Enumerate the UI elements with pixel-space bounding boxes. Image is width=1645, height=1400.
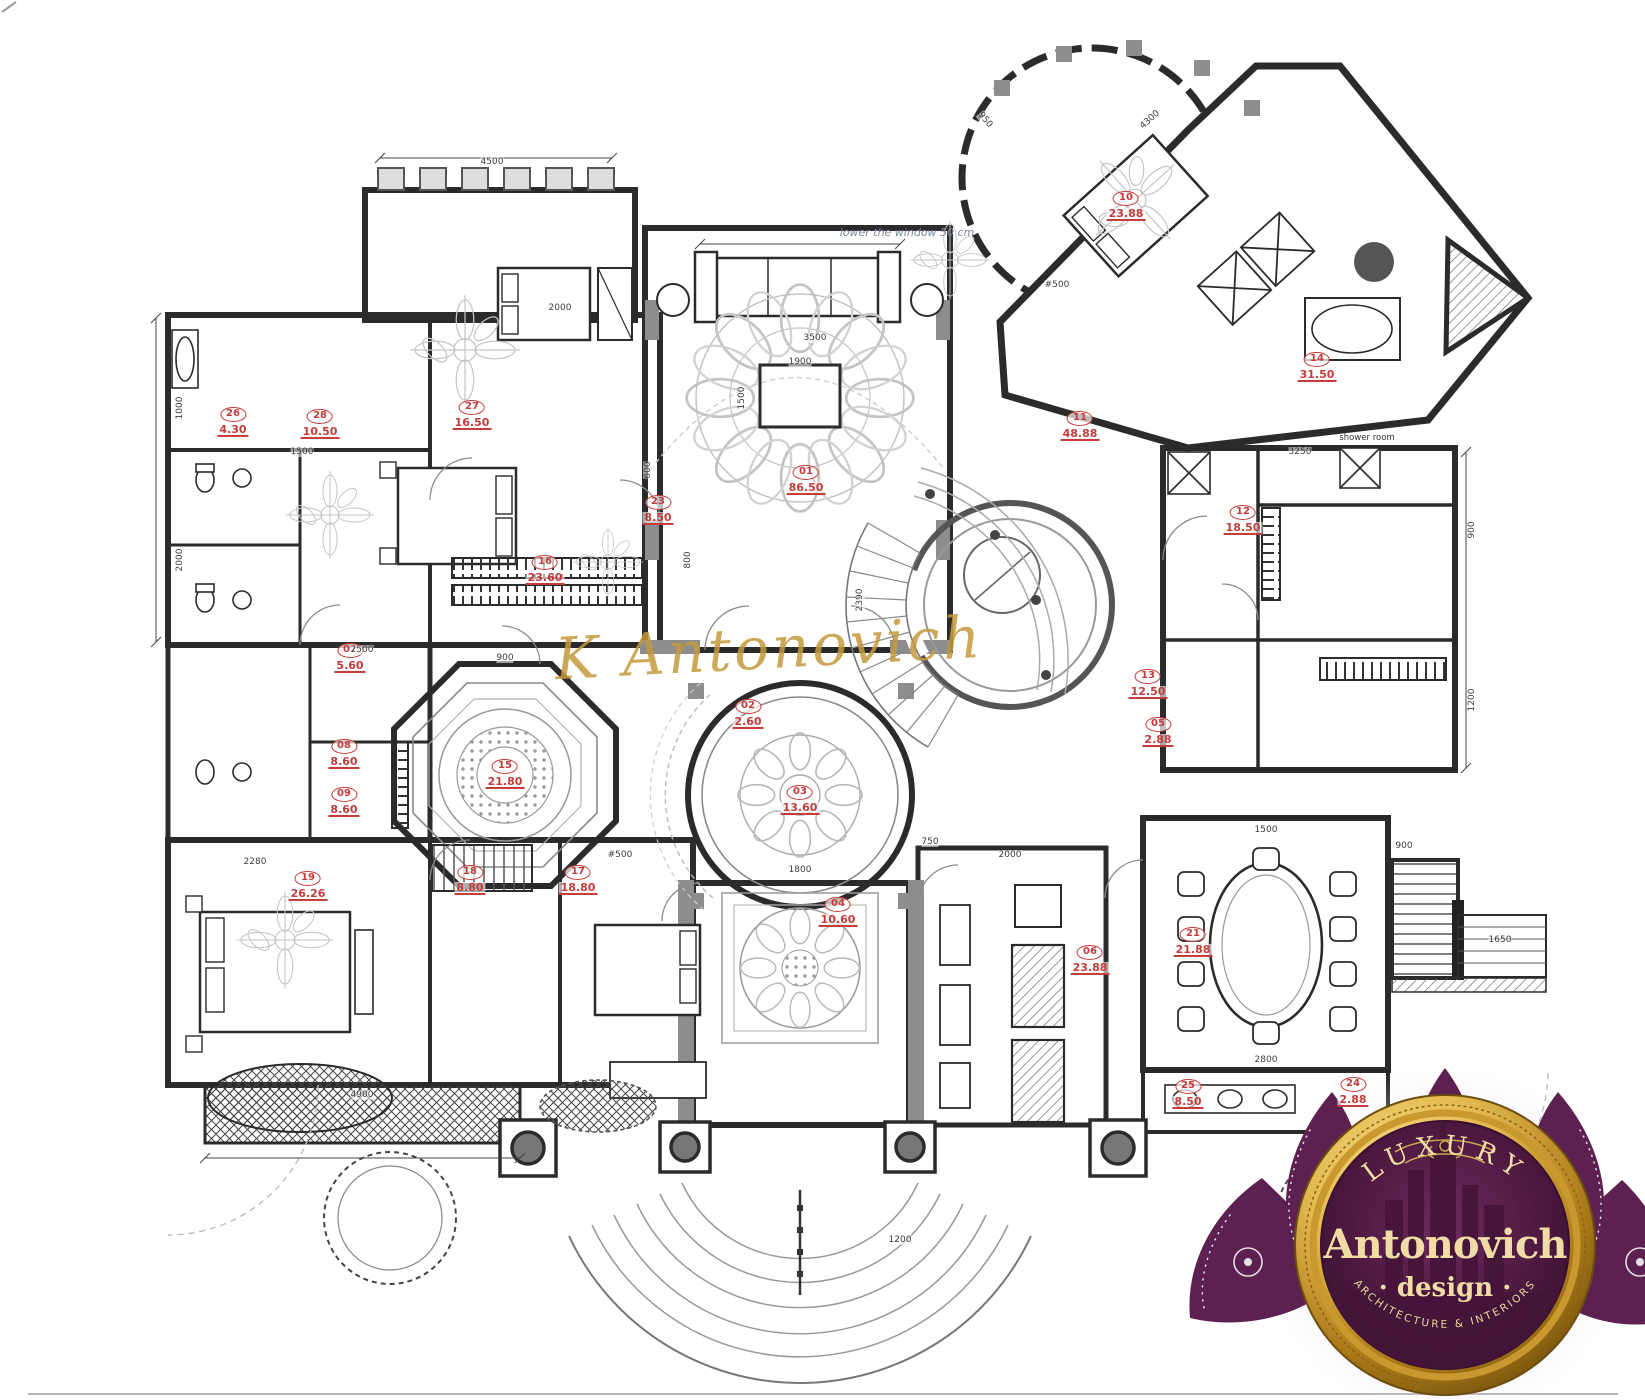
window-note: lower the window 50 cm [840,226,975,239]
floor-plan-drawing: lower the window 50 cm shower room K Ant… [0,0,1645,1400]
entrance-hall [722,893,878,1043]
balcony-crenellation [378,168,614,190]
logo-name-text: Antonovich [1323,1221,1568,1268]
logo-design-text: · design · [1379,1273,1512,1303]
right-stair [1392,860,1546,992]
shower-room-annotation: shower room [1339,433,1394,443]
brand-logo: LUXURY Antonovich · design · ARCHITECTUR… [1189,1067,1645,1400]
watermark-signature: K Antonovich [552,603,985,693]
great-hall-furniture [650,250,948,546]
rotunda [650,680,912,910]
floor-plan-page: lower the window 50 cm shower room K Ant… [0,0,1645,1400]
